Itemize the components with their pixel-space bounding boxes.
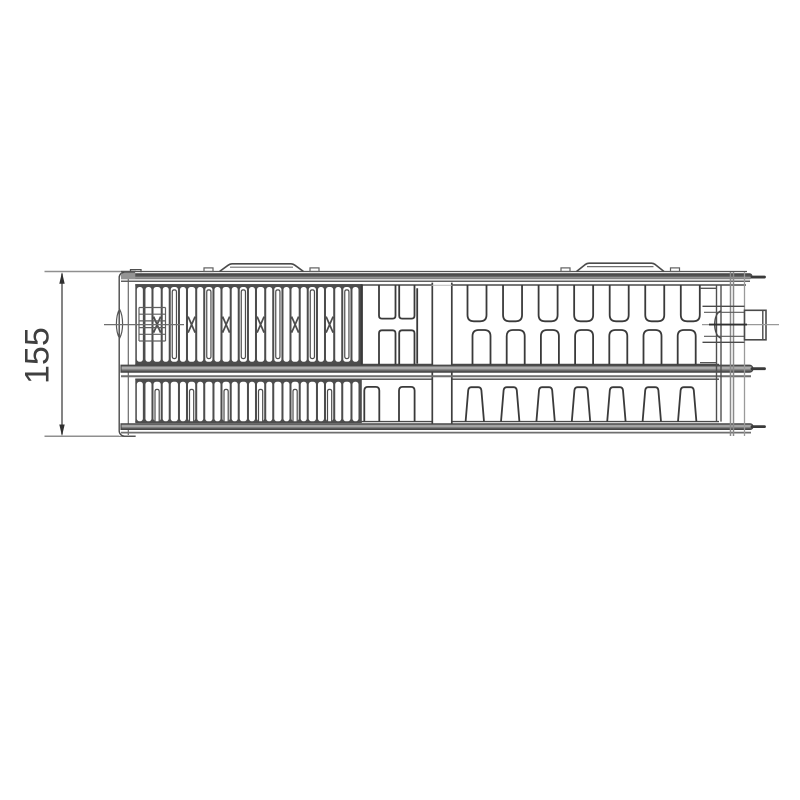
svg-text:155: 155 (19, 327, 57, 384)
